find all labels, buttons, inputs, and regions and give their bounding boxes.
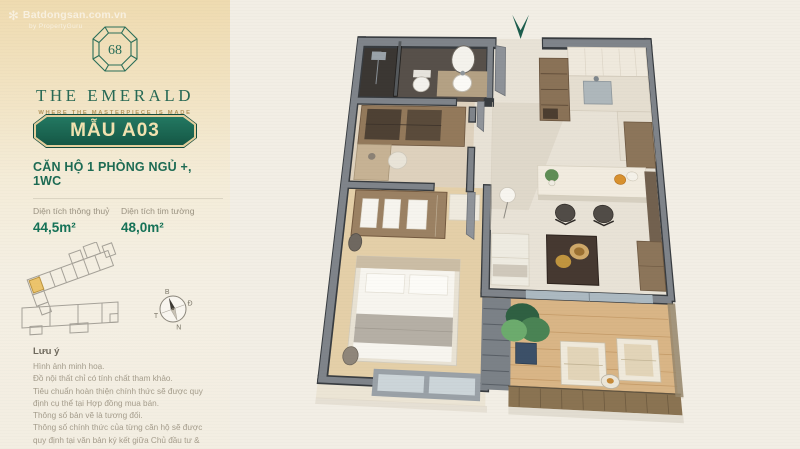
bar-stool bbox=[555, 204, 575, 221]
note-line: Thông số bản vẽ là tương đối. bbox=[33, 410, 217, 422]
compass-west-label: T bbox=[154, 313, 159, 320]
bowl bbox=[615, 175, 626, 185]
model-badge: MẪU A03 bbox=[33, 114, 197, 148]
desk-chair bbox=[388, 152, 406, 169]
note-line: Đồ nội thất chỉ có tính chất tham khảo. bbox=[33, 373, 217, 385]
site-plan-diagram bbox=[14, 242, 146, 345]
page: ✻ Batdongsan.com.vn by PropertyGuru 68 T… bbox=[0, 0, 800, 449]
model-badge-label: MẪU A03 bbox=[36, 117, 194, 145]
unit-title: CĂN HỘ 1 PHÒNG NGỦ +, 1WC bbox=[33, 160, 215, 188]
kitchen-sink bbox=[583, 81, 612, 104]
compass-south-label: N bbox=[176, 325, 181, 332]
hanging-clothes bbox=[360, 199, 379, 228]
brand-logo: 68 THE EMERALD WHERE THE MASTERPIECE IS … bbox=[0, 22, 230, 116]
bar-stool bbox=[594, 205, 614, 222]
plate bbox=[627, 172, 638, 181]
compass-icon: B Đ N T bbox=[150, 286, 196, 337]
basin bbox=[453, 75, 472, 92]
plan-shape bbox=[543, 108, 558, 119]
logo-number: 68 bbox=[108, 43, 122, 58]
desk bbox=[354, 144, 391, 180]
shower-head bbox=[371, 52, 386, 61]
entrance-door bbox=[495, 46, 505, 96]
hanging-clothes bbox=[383, 199, 401, 228]
note-line: Tiêu chuẩn hoàn thiện chính thức sẽ được… bbox=[33, 386, 217, 411]
divider bbox=[33, 198, 223, 199]
compass-north-label: B bbox=[165, 289, 170, 296]
area-net: Diện tích thông thuỷ 44,5m² bbox=[33, 206, 121, 235]
armchair bbox=[491, 233, 529, 286]
wall-cap bbox=[470, 108, 476, 121]
pillow bbox=[409, 275, 448, 295]
area-gross-value: 48,0m² bbox=[121, 220, 209, 235]
area-gross: Diện tích tim tường 48,0m² bbox=[121, 206, 209, 235]
compass-east-label: Đ bbox=[187, 301, 192, 308]
vase bbox=[343, 347, 358, 365]
note-line: Hình ảnh minh hoạ. bbox=[33, 361, 217, 373]
floor-lamp bbox=[500, 187, 516, 202]
wall-cap bbox=[543, 39, 651, 48]
hanging-clothes bbox=[407, 200, 428, 230]
entrance-arrow bbox=[512, 15, 529, 39]
unit-info: CĂN HỘ 1 PHÒNG NGỦ +, 1WC Diện tích thôn… bbox=[33, 160, 215, 235]
kitchen-tall-unit bbox=[624, 122, 656, 168]
info-panel: ✻ Batdongsan.com.vn by PropertyGuru 68 T… bbox=[0, 0, 230, 449]
brand-name: THE EMERALD bbox=[0, 86, 230, 106]
window-glass bbox=[429, 377, 476, 396]
disclaimer-notes: Lưu ý Hình ảnh minh hoạ. Đồ nội thất chỉ… bbox=[33, 346, 217, 449]
note-line: Thông số chính thức của từng căn hộ sẽ đ… bbox=[33, 422, 217, 449]
area-net-label: Diện tích thông thuỷ bbox=[33, 206, 121, 216]
wall-cap bbox=[358, 38, 495, 47]
plant-pot bbox=[516, 343, 537, 365]
louver-screen bbox=[480, 298, 511, 391]
notes-title: Lưu ý bbox=[33, 346, 217, 357]
plan-shape bbox=[493, 264, 528, 277]
watermark-brand: Batdongsan.com.vn bbox=[23, 10, 127, 22]
bathroom-door bbox=[477, 102, 484, 132]
bedroom-door bbox=[466, 192, 475, 239]
area-net-value: 44,5m² bbox=[33, 220, 121, 235]
mirror bbox=[452, 46, 475, 73]
toilet bbox=[413, 77, 429, 92]
window-glass bbox=[377, 374, 424, 393]
emerald-gem-icon: 68 bbox=[88, 22, 142, 76]
plan-shape bbox=[549, 180, 555, 186]
coffee-table bbox=[547, 235, 599, 285]
pillow bbox=[365, 273, 405, 293]
area-gross-label: Diện tích tim tường bbox=[121, 206, 209, 216]
